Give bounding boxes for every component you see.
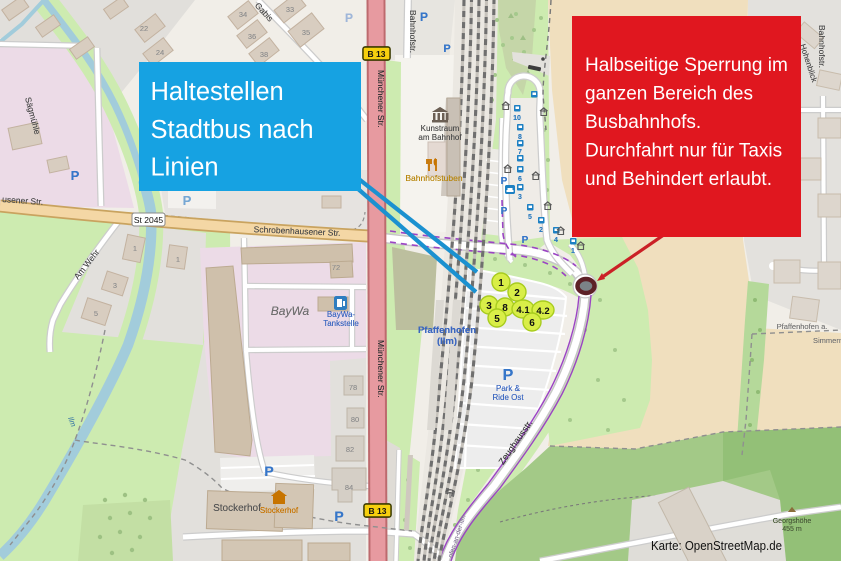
svg-text:36: 36: [248, 32, 256, 41]
svg-text:1: 1: [133, 244, 137, 253]
svg-text:5: 5: [94, 309, 98, 318]
svg-text:P: P: [183, 193, 192, 208]
svg-text:Karte: OpenStreetMap.de: Karte: OpenStreetMap.de: [651, 538, 782, 553]
svg-text:455 m: 455 m: [782, 526, 802, 533]
svg-text:P: P: [345, 11, 353, 25]
svg-text:P: P: [522, 235, 529, 246]
svg-text:und Behindert erlaubt.: und Behindert erlaubt.: [585, 169, 772, 190]
svg-text:Bahnhofstr.: Bahnhofstr.: [817, 25, 827, 68]
svg-text:7: 7: [518, 149, 522, 156]
svg-text:Park &: Park &: [496, 384, 521, 393]
svg-text:P: P: [264, 463, 273, 479]
svg-text:80: 80: [351, 415, 359, 424]
svg-text:P: P: [71, 168, 80, 183]
svg-text:4: 4: [554, 237, 558, 244]
svg-text:72: 72: [332, 263, 340, 272]
svg-text:P: P: [501, 206, 508, 217]
svg-text:Bahnhofstuben: Bahnhofstuben: [405, 173, 462, 183]
svg-text:Bahnhofstr.: Bahnhofstr.: [408, 10, 418, 53]
svg-text:P: P: [420, 10, 428, 24]
svg-text:P: P: [443, 43, 450, 55]
svg-text:8: 8: [518, 134, 522, 141]
svg-text:BayWa-: BayWa-: [327, 310, 355, 319]
svg-text:Pfaffenhofen a.: Pfaffenhofen a.: [777, 322, 828, 331]
svg-text:35: 35: [302, 28, 310, 37]
svg-text:BayWa: BayWa: [271, 304, 310, 318]
svg-text:Haltestellen: Haltestellen: [151, 78, 284, 106]
svg-text:3: 3: [113, 281, 117, 290]
svg-text:St 2045: St 2045: [134, 215, 164, 225]
svg-text:5: 5: [528, 214, 532, 221]
svg-text:24: 24: [156, 48, 164, 57]
svg-text:1: 1: [571, 248, 575, 255]
svg-text:10: 10: [513, 115, 521, 122]
svg-text:38: 38: [260, 50, 268, 59]
svg-text:2: 2: [539, 227, 543, 234]
svg-text:P: P: [334, 508, 343, 524]
svg-text:ganzen Bereich des: ganzen Bereich des: [585, 84, 753, 105]
svg-text:Pfaffenhofen: Pfaffenhofen: [418, 325, 476, 336]
svg-text:Stockerhof: Stockerhof: [213, 503, 261, 514]
svg-text:(Ilm): (Ilm): [437, 336, 457, 347]
svg-text:82: 82: [346, 445, 354, 454]
svg-text:78: 78: [349, 383, 357, 392]
svg-text:6: 6: [518, 176, 522, 183]
svg-text:am Bahnhof: am Bahnhof: [418, 133, 462, 142]
svg-text:B 13: B 13: [369, 506, 387, 516]
svg-text:34: 34: [239, 10, 247, 19]
svg-text:6: 6: [529, 318, 535, 329]
svg-text:Kunstraum: Kunstraum: [421, 124, 460, 133]
svg-text:22: 22: [140, 24, 148, 33]
svg-text:1: 1: [498, 278, 504, 289]
svg-text:Halbseitige Sperrung im: Halbseitige Sperrung im: [585, 55, 788, 76]
svg-text:Georgshöhe: Georgshöhe: [773, 518, 812, 525]
svg-text:Durchfahrt nur für Taxis: Durchfahrt nur für Taxis: [585, 141, 782, 162]
svg-text:84: 84: [345, 483, 353, 492]
svg-text:33: 33: [286, 5, 294, 14]
svg-text:B 13: B 13: [368, 49, 386, 59]
svg-text:Münchener Str.: Münchener Str.: [376, 340, 386, 398]
svg-text:Linien: Linien: [151, 154, 219, 182]
svg-text:1: 1: [176, 255, 180, 264]
svg-text:Simmern: Simmern: [813, 336, 841, 345]
svg-text:5: 5: [494, 314, 500, 325]
svg-text:Tankstelle: Tankstelle: [323, 319, 359, 328]
svg-text:Stadtbus nach: Stadtbus nach: [151, 116, 314, 144]
svg-text:Busbahnhofs.: Busbahnhofs.: [585, 112, 701, 133]
svg-text:P: P: [503, 367, 514, 384]
svg-text:Stockerhof: Stockerhof: [260, 506, 299, 515]
svg-text:3: 3: [518, 194, 522, 201]
svg-text:2: 2: [514, 288, 520, 299]
svg-text:Münchener Str.: Münchener Str.: [376, 70, 386, 128]
svg-text:Ride Ost: Ride Ost: [492, 393, 524, 402]
